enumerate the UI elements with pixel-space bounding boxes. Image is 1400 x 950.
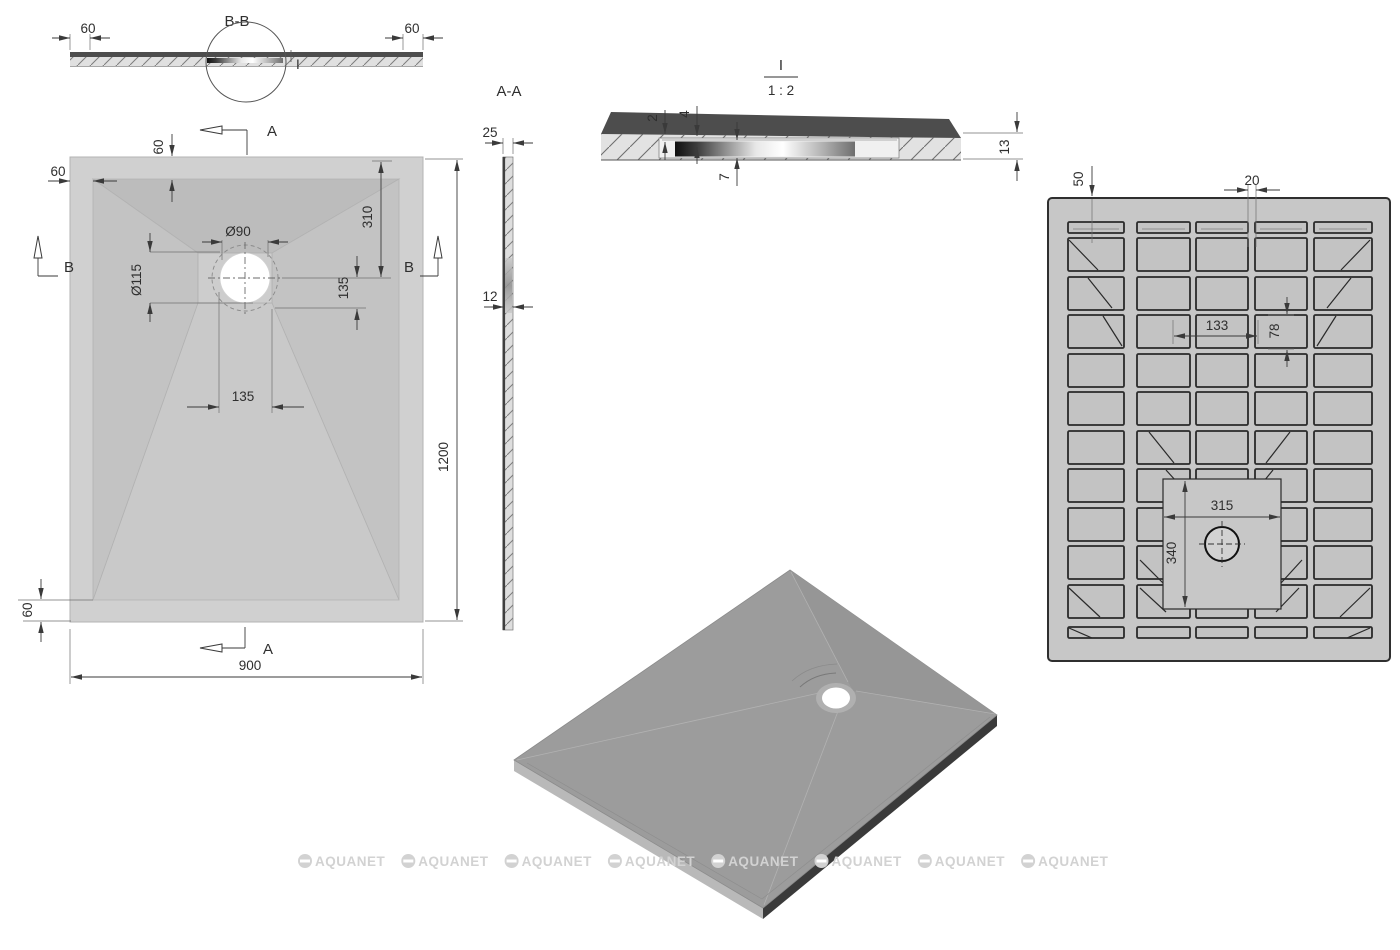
section-bb-top-layer <box>70 52 423 57</box>
section-mark-a-bottom: A <box>200 627 273 658</box>
rib-cell <box>1255 277 1307 310</box>
rib-cell <box>1196 222 1248 233</box>
rib-cell <box>1196 354 1248 387</box>
rib-cell <box>1137 354 1190 387</box>
dim-text: 1200 <box>436 442 451 472</box>
watermark: AQUANET <box>608 854 696 869</box>
rib-cell <box>1068 315 1124 348</box>
rib-cell <box>1314 354 1372 387</box>
dim-text: 135 <box>232 389 255 404</box>
dim-text: 60 <box>20 602 35 617</box>
watermark-text: AQUANET <box>315 854 386 869</box>
rib-cell <box>1314 392 1372 425</box>
detail-title: I <box>779 57 783 74</box>
rib-cell <box>1255 392 1307 425</box>
rib-cell <box>1255 627 1307 638</box>
rib-cell <box>1137 627 1190 638</box>
rib-cell <box>1196 238 1248 271</box>
rib-cell <box>1068 392 1124 425</box>
rib-cell <box>1255 431 1307 464</box>
dim-text: 7 <box>717 173 732 181</box>
section-view-aa: A-A 25 12 <box>482 83 533 630</box>
dim-text: 50 <box>1071 171 1086 186</box>
rib-cell <box>1068 277 1124 310</box>
dim-text: Ø90 <box>225 224 251 239</box>
drawing-svg: B-B I 60 60 <box>0 0 1400 950</box>
bottom-view: 50 20 133 78 315 <box>1048 166 1390 661</box>
dim-text: 20 <box>1244 173 1259 188</box>
rib-cell <box>1314 431 1372 464</box>
mark-text: B <box>64 259 74 276</box>
dim-text: 135 <box>336 277 351 300</box>
rib-cell <box>1255 354 1307 387</box>
rib-cell <box>1255 222 1307 233</box>
dim-text: 60 <box>50 164 65 179</box>
rib-cell <box>1137 277 1190 310</box>
rib-cell <box>1314 546 1372 579</box>
dimension-width: 900 <box>70 629 423 684</box>
rib-cell <box>1137 392 1190 425</box>
dim-text: 340 <box>1164 542 1179 565</box>
watermark: AQUANET <box>1021 854 1109 869</box>
dim-text: 315 <box>1211 498 1234 513</box>
iso-drain-hole <box>822 688 850 709</box>
mark-text: A <box>263 641 273 658</box>
rib-cell <box>1196 431 1248 464</box>
section-aa-surface-edge <box>503 157 506 630</box>
dimension-detail-thickness: 13 <box>963 112 1023 181</box>
rib-cell <box>1314 315 1372 348</box>
rib-cell <box>1068 238 1124 271</box>
dim-text: 900 <box>239 658 262 673</box>
rib-cell <box>1137 238 1190 271</box>
rib-cell <box>1314 469 1372 502</box>
rib-cell <box>1068 431 1124 464</box>
dim-text: 60 <box>404 21 419 36</box>
rib-cell <box>1137 315 1190 348</box>
watermark-text: AQUANET <box>522 854 593 869</box>
rib-cell <box>1314 238 1372 271</box>
watermark-text: AQUANET <box>625 854 696 869</box>
section-bb-title: B-B <box>224 13 249 30</box>
rib-cell <box>1068 222 1124 233</box>
watermark-text: AQUANET <box>728 854 799 869</box>
section-aa-title: A-A <box>496 83 521 100</box>
watermark-text: AQUANET <box>935 854 1006 869</box>
section-bb-drain-cover <box>207 58 283 63</box>
watermark: AQUANET <box>298 854 386 869</box>
watermark: AQUANET <box>401 854 489 869</box>
rib-cell <box>1314 222 1372 233</box>
mark-text: B <box>404 259 414 276</box>
rib-cell <box>1068 469 1124 502</box>
dimension-bb-left-rim: 60 <box>52 21 110 50</box>
rib-cell <box>1196 277 1248 310</box>
rib-cell <box>1196 392 1248 425</box>
dim-text: 2 <box>645 114 660 122</box>
technical-drawing-sheet: B-B I 60 60 <box>0 0 1400 950</box>
dim-text: Ø115 <box>129 264 144 296</box>
dim-text: 12 <box>482 289 497 304</box>
dim-text: 78 <box>1267 323 1282 338</box>
rib-cell <box>1314 627 1372 638</box>
watermark-text: AQUANET <box>832 854 903 869</box>
watermark-text: AQUANET <box>1038 854 1109 869</box>
dimension-aa-edge: 25 <box>482 125 533 154</box>
detail-scale: 1 : 2 <box>768 83 794 98</box>
dim-text: 25 <box>482 125 497 140</box>
dim-text: 60 <box>80 21 95 36</box>
rib-cell <box>1068 627 1124 638</box>
dim-text: 13 <box>997 139 1012 154</box>
section-mark-a-top: A <box>200 123 277 155</box>
dimension-length: 1200 <box>425 159 463 621</box>
rib-cell <box>1196 627 1248 638</box>
rib-cell <box>1137 431 1190 464</box>
rib-cell <box>1068 354 1124 387</box>
detail-callout-label: I <box>296 57 300 72</box>
rib-cell <box>1314 508 1372 541</box>
detail-drain-cover <box>675 142 855 157</box>
rib-cell <box>1314 277 1372 310</box>
dimension-bb-right-rim: 60 <box>385 21 443 50</box>
dim-text: 60 <box>151 139 166 154</box>
dim-text: 4 <box>677 110 692 118</box>
rib-cell <box>1068 508 1124 541</box>
section-aa-drain-shadow <box>505 258 512 313</box>
section-view-bb: B-B I 60 60 <box>52 13 443 102</box>
detail-view-i: I 1 : 2 2 4 7 13 <box>601 57 1023 186</box>
watermark-text: AQUANET <box>418 854 489 869</box>
rib-cell <box>1255 238 1307 271</box>
rib-cell <box>1137 222 1190 233</box>
plan-view: A A B B 60 <box>18 123 463 684</box>
mark-text: A <box>267 123 277 140</box>
section-mark-b-left: B <box>34 236 74 276</box>
watermark: AQUANET <box>505 854 593 869</box>
rib-cell <box>1068 546 1124 579</box>
watermark: AQUANET <box>918 854 1006 869</box>
rib-cell <box>1314 585 1372 618</box>
dim-text: 133 <box>1206 318 1229 333</box>
dim-text: 310 <box>360 206 375 229</box>
